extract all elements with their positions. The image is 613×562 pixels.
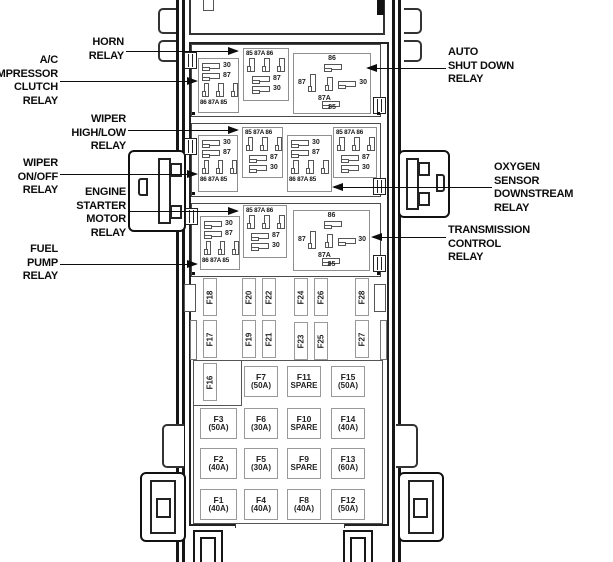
blade-terminal-icon	[249, 165, 267, 171]
pin-terminal-icon	[277, 137, 282, 151]
pin-terminal-icon	[262, 137, 267, 151]
fuse-f22: F22	[262, 278, 276, 316]
hook-top-right-1	[404, 8, 422, 34]
fuse-f21: F21	[262, 320, 276, 358]
pin-label-87: 87	[273, 75, 281, 82]
right-connector-tab-1	[418, 162, 430, 176]
pin-terminal-icon	[339, 137, 345, 151]
arrow-oxygen-sensor-downstream-relay	[334, 187, 492, 188]
blade-terminal-icon	[324, 221, 342, 227]
arrow-horn-relay	[126, 51, 237, 52]
relay-auto-shut-down: 86 87 87A 30 85	[293, 53, 371, 114]
pin-label-85: 85	[294, 104, 370, 111]
top-latch	[377, 0, 384, 15]
f16-compartment	[193, 360, 242, 406]
pin-label-87: 87	[298, 236, 306, 243]
pin-label-86: 86	[294, 55, 370, 62]
fuse-f15: F15(50A)	[331, 366, 365, 397]
blade-terminal-icon	[202, 73, 220, 79]
pin-label-85: 85	[294, 261, 369, 268]
fuse-f25: F25	[314, 322, 328, 360]
hook-top-right-2	[404, 40, 422, 62]
pin-labels-bottom: 86 87A 85	[200, 99, 238, 106]
fuse-f10: F10SPARE	[287, 408, 321, 439]
pin-labels-top: 85 87A 86	[246, 207, 286, 214]
pin-terminal-icon	[206, 241, 211, 255]
blade-terminal-icon	[204, 231, 222, 237]
arrow-ac-compressor-clutch-relay	[60, 81, 196, 82]
fuse-f6: F6(30A)	[244, 408, 278, 439]
blade-terminal-icon	[202, 63, 220, 69]
blade-terminal-icon	[338, 238, 356, 244]
mount-dot	[192, 112, 195, 115]
relay-transmission-control: 86 87 87A 30 85	[293, 210, 370, 271]
relay-fuel-pump: 30 87 86 87A 85	[200, 216, 240, 270]
label-ac-compressor-clutch-relay: A/C OMPRESSOR CLUTCH RELAY	[0, 54, 58, 108]
arrow-wiper-on-off-relay	[60, 174, 196, 175]
pin-terminal-icon	[323, 160, 329, 174]
fuse-f20: F20	[242, 278, 256, 316]
pin-terminal-icon	[218, 83, 223, 97]
fuse-rail-bracket-left	[184, 284, 196, 312]
mount-dot	[377, 272, 380, 275]
fuse-f1: F1(40A)	[200, 489, 237, 520]
pin-terminal-icon	[249, 215, 255, 229]
fuse-f9: F9SPARE	[287, 448, 321, 479]
blade-terminal-icon	[251, 233, 269, 239]
relay-ac-compressor-clutch: 30 87 86 87A 85	[198, 58, 239, 113]
pin-label-87: 87	[223, 149, 231, 156]
pin-terminal-icon	[234, 241, 239, 255]
pin-terminal-icon	[279, 215, 285, 229]
left-connector-notch	[138, 178, 148, 196]
left-leg-inner	[200, 537, 216, 562]
fuse-f5: F5(30A)	[244, 448, 278, 479]
pin-terminal-icon	[220, 241, 225, 255]
relay-horn: 85 87A 86 87 30	[243, 48, 289, 101]
fuse-f8: F8(40A)	[287, 489, 321, 520]
pin-label-30: 30	[359, 79, 367, 86]
row3-connector-icon	[373, 255, 386, 272]
pin-labels-top: 85 87A 86	[245, 129, 282, 136]
pin-terminal-icon	[308, 160, 314, 174]
fuse-f26: F26	[314, 278, 328, 316]
bottom-left-connector-tab	[156, 498, 171, 518]
relay-unlabeled: 85 87A 86 87 30	[333, 127, 377, 178]
label-engine-starter-motor-relay: ENGINE STARTER MOTOR RELAY	[26, 186, 126, 240]
pin-labels-top: 85 87A 86	[336, 129, 376, 136]
pin-label-30: 30	[223, 62, 231, 69]
mount-dot	[377, 112, 380, 115]
relay-wiper-on-off: 30 87 86 87A 85	[198, 135, 238, 192]
blade-terminal-icon	[202, 150, 220, 156]
pin-label-87: 87	[225, 230, 233, 237]
fuse-relay-diagram: 30 87 86 87A 85 85 87A 86 87 30 86 87 87…	[0, 0, 613, 562]
fuse-f7: F7(50A)	[244, 366, 278, 397]
right-rail-inner	[392, 0, 395, 562]
fuse-f4: F4(40A)	[244, 489, 278, 520]
right-connector-tab-2	[418, 192, 430, 206]
fuse-f12: F12(50A)	[331, 489, 365, 520]
fuse-f2: F2(40A)	[200, 448, 237, 479]
pin-label-86: 86	[294, 212, 369, 219]
pin-label-30: 30	[362, 164, 370, 171]
blade-terminal-icon	[324, 64, 342, 70]
pin-label-30: 30	[273, 85, 281, 92]
label-fuel-pump-relay: FUEL PUMP RELAY	[0, 243, 58, 284]
arrow-wiper-high-low-relay	[128, 130, 237, 131]
pin-label-30: 30	[272, 242, 280, 249]
relay-wiper-high-low: 85 87A 86 87 30	[242, 127, 283, 178]
label-oxygen-sensor-downstream-relay: OXYGEN SENSOR DOWNSTREAM RELAY	[494, 161, 604, 215]
row2-connector-icon	[184, 138, 197, 155]
left-connector-tab-2	[170, 205, 182, 219]
blade-terminal-icon	[291, 140, 309, 146]
blade-terminal-icon	[341, 165, 359, 171]
pin-terminal-icon	[204, 83, 209, 97]
blade-terminal-icon	[204, 221, 222, 227]
label-auto-shut-down-relay: AUTO SHUT DOWN RELAY	[448, 46, 558, 87]
arrow-fuel-pump-relay	[60, 264, 196, 265]
fuse-f14: F14(40A)	[331, 408, 365, 439]
pin-label-87: 87	[223, 72, 231, 79]
fuse-f16: F16	[203, 363, 217, 401]
fuse-f3: F3(50A)	[200, 408, 237, 439]
pin-label-87: 87	[312, 149, 320, 156]
fuse-f27: F27	[355, 320, 369, 358]
arrow-auto-shut-down-relay	[368, 68, 446, 69]
pin-label-87: 87	[272, 232, 280, 239]
row1-connector-icon	[184, 52, 197, 69]
pin-terminal-icon	[327, 77, 333, 91]
right-leg-inner	[350, 537, 366, 562]
bottom-right-connector-tab	[413, 498, 428, 518]
top-tab	[203, 0, 214, 11]
pin-terminal-icon	[264, 58, 270, 72]
pin-terminal-icon	[279, 58, 285, 72]
right-connector-notch	[436, 174, 445, 192]
arrow-engine-starter-motor-relay	[128, 211, 237, 212]
hook-bottom-left	[162, 424, 184, 468]
pin-terminal-icon	[218, 160, 223, 174]
pin-label-87: 87	[362, 154, 370, 161]
blade-terminal-icon	[252, 86, 270, 92]
pin-label-30: 30	[223, 139, 231, 146]
fuse-f19: F19	[242, 320, 256, 358]
pin-terminal-icon	[249, 58, 255, 72]
arrow-transmission-control-relay	[373, 237, 446, 238]
fuse-f11: F11SPARE	[287, 366, 321, 397]
label-transmission-control-relay: TRANSMISSION CONTROL RELAY	[448, 224, 568, 265]
relay-oxygen-sensor-downstream: 30 87 86 87A 85	[287, 135, 332, 192]
pin-label-87: 87	[298, 79, 306, 86]
blade-terminal-icon	[291, 150, 309, 156]
fuse-f17: F17	[203, 320, 217, 358]
pin-labels-top: 85 87A 86	[246, 50, 288, 57]
pin-terminal-icon	[310, 74, 316, 92]
pin-terminal-icon	[204, 160, 209, 174]
relay-engine-starter-motor: 85 87A 86 87 30	[243, 205, 287, 258]
fuse-f18: F18	[203, 278, 217, 316]
pin-terminal-icon	[233, 83, 238, 97]
blade-terminal-icon	[341, 155, 359, 161]
pin-label-30: 30	[225, 220, 233, 227]
pin-terminal-icon	[264, 215, 270, 229]
blade-terminal-icon	[202, 140, 220, 146]
pin-label-30: 30	[270, 164, 278, 171]
fuse-f13: F13(60A)	[331, 448, 365, 479]
pin-label-30: 30	[312, 139, 320, 146]
top-compartment	[189, 0, 385, 35]
fuse-f24: F24	[294, 278, 308, 316]
pin-label-87: 87	[270, 154, 278, 161]
mount-dot	[192, 272, 195, 275]
pin-terminal-icon	[354, 137, 360, 151]
mount-dot	[192, 192, 195, 195]
pin-terminal-icon	[369, 137, 375, 151]
pin-labels-bottom: 86 87A 85	[200, 176, 237, 183]
pin-terminal-icon	[310, 231, 316, 249]
fuse-rail-bracket-right	[374, 284, 386, 312]
pin-terminal-icon	[327, 234, 333, 248]
pin-labels-bottom: 86 87A 85	[289, 176, 331, 183]
blade-terminal-icon	[249, 155, 267, 161]
label-wiper-high-low-relay: WIPER HIGH/LOW RELAY	[26, 113, 126, 154]
fuse-divider-left	[190, 320, 197, 360]
pin-terminal-icon	[248, 137, 253, 151]
pin-terminal-icon	[232, 160, 237, 174]
hook-top-left-1	[158, 8, 176, 34]
pin-terminal-icon	[293, 160, 299, 174]
fuse-f28: F28	[355, 278, 369, 316]
blade-terminal-icon	[251, 243, 269, 249]
hook-bottom-right	[396, 424, 418, 468]
pin-labels-bottom: 86 87A 85	[202, 257, 239, 264]
pin-label-30: 30	[358, 236, 366, 243]
blade-terminal-icon	[252, 76, 270, 82]
fuse-divider-right	[380, 320, 387, 360]
blade-terminal-icon	[338, 81, 356, 87]
fuse-f23: F23	[294, 322, 308, 360]
